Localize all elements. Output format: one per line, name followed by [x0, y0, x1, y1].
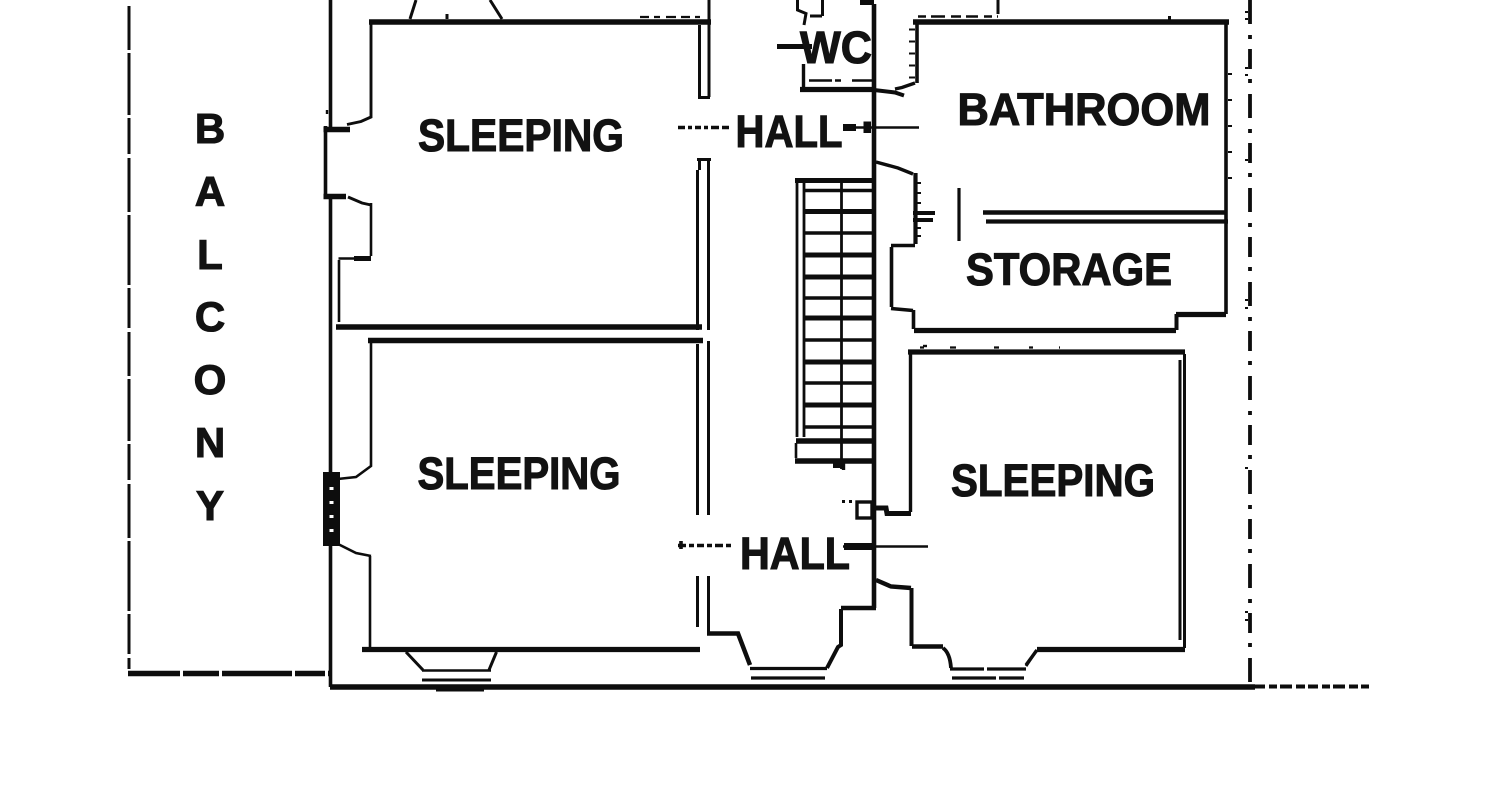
svg-text:N: N — [195, 419, 225, 466]
svg-text:BATHROOM: BATHROOM — [958, 84, 1211, 135]
svg-text:A: A — [195, 168, 225, 215]
svg-text:WC: WC — [800, 22, 872, 73]
svg-text:L: L — [197, 231, 223, 278]
svg-text:SLEEPING: SLEEPING — [418, 448, 621, 499]
svg-text:O: O — [194, 356, 227, 403]
svg-text:B: B — [195, 105, 225, 152]
svg-text:HALL: HALL — [740, 528, 850, 579]
svg-text:HALL: HALL — [736, 106, 843, 157]
svg-text:SLEEPING: SLEEPING — [418, 110, 624, 161]
svg-text:STORAGE: STORAGE — [966, 244, 1172, 295]
svg-text:C: C — [195, 293, 225, 340]
svg-text:SLEEPING: SLEEPING — [951, 455, 1155, 506]
svg-text:Y: Y — [196, 482, 224, 529]
